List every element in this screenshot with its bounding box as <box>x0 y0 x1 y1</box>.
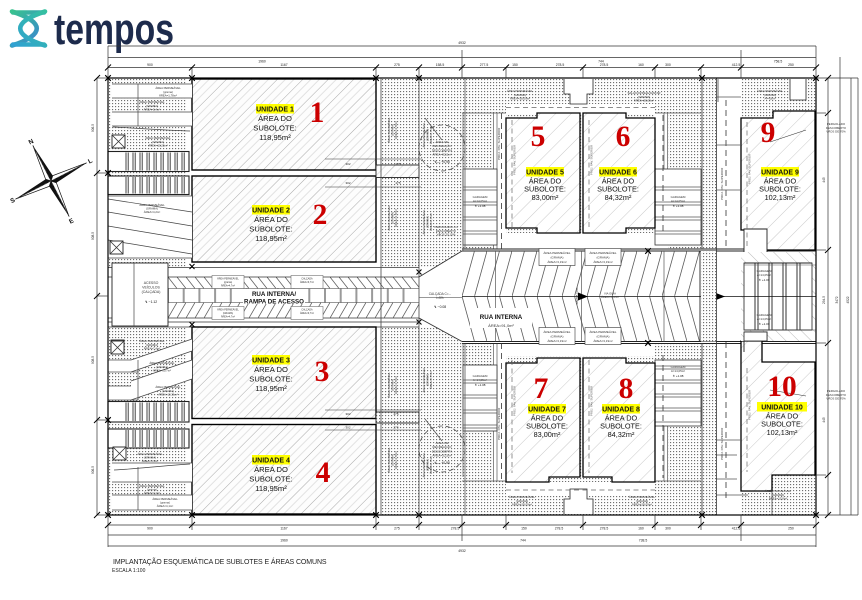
svg-text:PROJ. PAV. SUPERIOR: PROJ. PAV. SUPERIOR <box>590 145 594 175</box>
svg-text:SUBOLOTE:: SUBOLOTE: <box>249 375 292 384</box>
svg-text:744: 744 <box>520 539 526 543</box>
svg-text:ÁREA=4,78m²: ÁREA=4,78m² <box>394 121 398 139</box>
svg-text:(GRAMA): (GRAMA) <box>597 335 610 339</box>
svg-text:ÁREA PERMEÁVEL: ÁREA PERMEÁVEL <box>543 251 571 255</box>
svg-text:PROJ. PAV. SUPERIOR: PROJ. PAV. SUPERIOR <box>497 407 501 440</box>
svg-text:VÃOS DE 70%: VÃOS DE 70% <box>826 396 846 401</box>
svg-text:4522: 4522 <box>846 296 850 303</box>
svg-text:RAMPA i=8%: RAMPA i=8% <box>575 287 579 304</box>
svg-text:4932: 4932 <box>458 41 466 45</box>
svg-text:UNIDADE 1: UNIDADE 1 <box>256 106 294 113</box>
svg-text:250: 250 <box>788 63 794 67</box>
svg-text:302: 302 <box>345 412 350 416</box>
svg-text:150: 150 <box>521 527 527 531</box>
svg-text:1: 1 <box>310 97 325 129</box>
svg-text:ACESSO: ACESSO <box>144 281 159 285</box>
svg-text:150: 150 <box>512 63 518 67</box>
svg-text:ÁREA DO: ÁREA DO <box>254 215 288 224</box>
svg-text:ÁREA=4,78m²: ÁREA=4,78m² <box>394 376 398 394</box>
svg-text:4932: 4932 <box>458 549 466 553</box>
svg-text:ÁREA=15,8m²: ÁREA=15,8m² <box>769 497 788 501</box>
svg-text:(GRAMA): (GRAMA) <box>551 256 564 260</box>
svg-text:275: 275 <box>395 162 400 166</box>
svg-text:ÁREA=7,4m²: ÁREA=7,4m² <box>144 347 160 351</box>
svg-text:1960: 1960 <box>258 60 266 64</box>
svg-text:9: 9 <box>761 117 776 149</box>
svg-text:ÁREA=10,7m²: ÁREA=10,7m² <box>153 369 171 373</box>
svg-text:ÁREA DO: ÁREA DO <box>258 114 292 123</box>
svg-text:84,32m²: 84,32m² <box>605 193 632 202</box>
svg-text:900: 900 <box>147 527 153 531</box>
svg-text:84,32m²: 84,32m² <box>608 430 635 439</box>
svg-text:A=14,05m²: A=14,05m² <box>473 199 487 203</box>
svg-text:302: 302 <box>345 162 350 166</box>
svg-text:SUBOLOTE:: SUBOLOTE: <box>249 225 292 234</box>
svg-text:445: 445 <box>822 417 826 423</box>
svg-text:↯ +1.03: ↯ +1.03 <box>759 322 770 326</box>
svg-text:↯ +1.08: ↯ +1.08 <box>673 204 684 208</box>
svg-text:160: 160 <box>638 527 644 531</box>
svg-text:275: 275 <box>394 527 400 531</box>
svg-text:908.5: 908.5 <box>91 232 95 240</box>
svg-text:ÁREA=4,7m²: ÁREA=4,7m² <box>221 284 235 287</box>
svg-text:906.5: 906.5 <box>91 124 95 132</box>
svg-text:278.5: 278.5 <box>556 63 565 67</box>
svg-text:278.5: 278.5 <box>600 527 609 531</box>
svg-text:250: 250 <box>788 527 794 531</box>
svg-text:ÁREA PERMEÁVEL: ÁREA PERMEÁVEL <box>589 330 617 334</box>
svg-text:SUBOLOTE:: SUBOLOTE: <box>253 124 296 133</box>
svg-text:302: 302 <box>345 426 350 430</box>
svg-text:ÁREA=10,22m²: ÁREA=10,22m² <box>148 144 168 148</box>
svg-text:ÁREA=4,1m²: ÁREA=4,1m² <box>157 504 173 508</box>
svg-text:118,95m²: 118,95m² <box>259 133 291 142</box>
svg-text:PROJ. PAV. SUPERIOR: PROJ. PAV. SUPERIOR <box>720 167 724 200</box>
svg-text:↯ +1.08: ↯ +1.08 <box>673 374 684 378</box>
svg-text:ÁREA PERMEÁVEL: ÁREA PERMEÁVEL <box>543 330 571 334</box>
svg-text:275: 275 <box>393 412 398 416</box>
svg-text:A=14,05m²: A=14,05m² <box>671 199 685 203</box>
svg-text:RUA INTERNA/: RUA INTERNA/ <box>252 291 296 298</box>
svg-text:ÁREA=4,1m²: ÁREA=4,1m² <box>144 491 160 495</box>
svg-text:ÁREA=3,19m²: ÁREA=3,19m² <box>547 260 566 264</box>
svg-text:ÁREA DO: ÁREA DO <box>254 365 288 374</box>
svg-text:ÁREA=28,09m²: ÁREA=28,09m² <box>634 99 654 103</box>
svg-text:SUBOLOTE:: SUBOLOTE: <box>249 475 292 484</box>
svg-text:1960: 1960 <box>280 539 288 543</box>
svg-text:↯— +0.90: ↯— +0.90 <box>434 461 450 465</box>
svg-text:ÁREA=4,78m²: ÁREA=4,78m² <box>394 209 398 227</box>
svg-text:445: 445 <box>822 177 826 183</box>
svg-text:UNIDADE 3: UNIDADE 3 <box>252 357 290 364</box>
svg-text:8: 8 <box>619 373 634 405</box>
svg-text:275: 275 <box>393 426 398 430</box>
svg-text:ÁREA=28,09m²: ÁREA=28,09m² <box>632 503 652 507</box>
svg-text:83,00m²: 83,00m² <box>532 193 559 202</box>
svg-text:PROJ. PAV. SUPERIOR: PROJ. PAV. SUPERIOR <box>590 386 594 416</box>
svg-text:275: 275 <box>394 63 400 67</box>
svg-text:3472: 3472 <box>835 296 839 303</box>
svg-text:118,95m²: 118,95m² <box>255 484 287 493</box>
svg-text:PROJ. PAV. SUPERIOR: PROJ. PAV. SUPERIOR <box>748 390 752 420</box>
svg-text:278.5: 278.5 <box>555 527 564 531</box>
svg-text:ÁREA=4,7m²: ÁREA=4,7m² <box>221 315 235 318</box>
svg-text:ÁREA=5,4m²: ÁREA=5,4m² <box>144 108 160 112</box>
svg-text:118,95m²: 118,95m² <box>255 384 287 393</box>
svg-text:744: 744 <box>598 60 604 64</box>
svg-text:1167: 1167 <box>280 527 287 531</box>
svg-text:A=4,8m²: A=4,8m² <box>764 97 775 101</box>
svg-text:102,13m²: 102,13m² <box>765 193 796 202</box>
svg-text:7: 7 <box>534 373 549 405</box>
svg-text:118,95m²: 118,95m² <box>255 234 287 243</box>
svg-text:RUA INTERNA: RUA INTERNA <box>480 314 523 321</box>
svg-text:6: 6 <box>616 121 631 153</box>
svg-text:↯ −0.08: ↯ −0.08 <box>434 305 446 309</box>
svg-text:900: 900 <box>147 63 153 67</box>
svg-text:102,13m²: 102,13m² <box>767 428 798 437</box>
svg-text:VÃOS 20.10%: VÃOS 20.10% <box>437 232 456 237</box>
svg-text:ÁREA=3,19m²: ÁREA=3,19m² <box>547 339 566 343</box>
svg-text:PROJ. PAV. SUPERIOR: PROJ. PAV. SUPERIOR <box>748 154 752 184</box>
svg-text:A=14,05m²: A=14,05m² <box>757 317 771 321</box>
svg-text:ÁREA=9,7m²: ÁREA=9,7m² <box>300 312 314 315</box>
svg-text:PROJ. PAV. SUPERIOR: PROJ. PAV. SUPERIOR <box>513 145 517 175</box>
svg-text:ÁREA=8,75m²: ÁREA=8,75m² <box>429 213 433 231</box>
svg-text:277.5: 277.5 <box>480 63 489 67</box>
svg-text:2: 2 <box>313 199 328 231</box>
svg-text:908.5: 908.5 <box>91 356 95 364</box>
svg-text:IMPLANTAÇÃO ESQUEMÁTICA DE SUB: IMPLANTAÇÃO ESQUEMÁTICA DE SUBLOTES E ÁR… <box>113 557 327 566</box>
svg-text:158.5: 158.5 <box>436 63 445 67</box>
svg-text:758.5: 758.5 <box>774 60 783 64</box>
svg-text:160: 160 <box>638 63 644 67</box>
svg-text:10: 10 <box>767 371 797 403</box>
svg-text:300: 300 <box>665 527 671 531</box>
svg-text:↯— +0.90: ↯— +0.90 <box>434 160 450 164</box>
svg-text:ÁREA=32,5m²: ÁREA=32,5m² <box>432 454 451 458</box>
svg-text:294.5: 294.5 <box>822 296 826 304</box>
svg-text:↯ +1.03: ↯ +1.03 <box>759 278 770 282</box>
svg-text:↯ −1.12: ↯ −1.12 <box>145 300 157 304</box>
svg-text:83,00m²: 83,00m² <box>534 430 561 439</box>
svg-text:ÁREA=8,75m²: ÁREA=8,75m² <box>429 371 433 389</box>
svg-text:(GRAMA): (GRAMA) <box>551 335 564 339</box>
svg-text:906.5: 906.5 <box>91 466 95 474</box>
svg-text:ÁREA=3,19m²: ÁREA=3,19m² <box>593 260 612 264</box>
svg-text:ÁREA=32,5m²: ÁREA=32,5m² <box>432 153 451 157</box>
svg-text:UNIDADE 4: UNIDADE 4 <box>252 457 290 464</box>
svg-text:PROJ. PAV. SUPERIOR: PROJ. PAV. SUPERIOR <box>513 386 517 416</box>
svg-text:tempos: tempos <box>54 5 174 54</box>
svg-text:ÁREA=3,19m²: ÁREA=3,19m² <box>593 339 612 343</box>
svg-text:300: 300 <box>665 63 671 67</box>
svg-text:PROJ. PAV. SUPERIOR: PROJ. PAV. SUPERIOR <box>720 427 724 460</box>
svg-text:A=14,05m²: A=14,05m² <box>757 273 771 277</box>
svg-text:VÃOS DE 70%: VÃOS DE 70% <box>826 129 846 134</box>
svg-text:278.5: 278.5 <box>600 63 609 67</box>
svg-text:5: 5 <box>531 121 546 153</box>
svg-text:ÁREA=4,78m²: ÁREA=4,78m² <box>394 451 398 469</box>
svg-text:ÁREA=28,09m²: ÁREA=28,09m² <box>510 97 530 101</box>
svg-text:ÁREA=8,75m²: ÁREA=8,75m² <box>429 456 433 474</box>
svg-text:PROJ. PAV. SUPERIOR: PROJ. PAV. SUPERIOR <box>497 127 501 160</box>
svg-text:VEÍCULOS: VEÍCULOS <box>142 285 160 289</box>
svg-text:3: 3 <box>315 356 330 388</box>
svg-text:278.5: 278.5 <box>451 527 460 531</box>
svg-text:ÁREA=38,2m²: ÁREA=38,2m² <box>601 295 619 299</box>
svg-text:↯ +1.08: ↯ +1.08 <box>475 383 486 387</box>
svg-text:i=5%: i=5% <box>436 296 443 300</box>
svg-text:412.5: 412.5 <box>732 527 741 531</box>
svg-text:1167: 1167 <box>280 63 287 67</box>
svg-text:738.5: 738.5 <box>639 539 648 543</box>
svg-text:A=14,05m²: A=14,05m² <box>671 369 685 373</box>
svg-text:ÁREA=91,0m²: ÁREA=91,0m² <box>488 323 514 328</box>
svg-text:ÁREA=4,2m²: ÁREA=4,2m² <box>144 210 160 214</box>
svg-text:ÁREA=8,75m²: ÁREA=8,75m² <box>429 126 433 144</box>
svg-text:ESCALA 1:100: ESCALA 1:100 <box>112 568 146 574</box>
svg-text:↯ +1.08: ↯ +1.08 <box>475 204 486 208</box>
svg-text:ÁREA=10,36m²: ÁREA=10,36m² <box>158 393 178 397</box>
svg-text:ÁREA=4,9m²: ÁREA=4,9m² <box>142 459 158 463</box>
svg-text:412.5: 412.5 <box>732 63 741 67</box>
svg-text:A=14,05m²: A=14,05m² <box>473 378 487 382</box>
svg-text:ÁREA=1,78m²: ÁREA=1,78m² <box>159 94 177 98</box>
svg-text:(CALÇADA): (CALÇADA) <box>142 290 161 294</box>
svg-text:ÁREA=9,7m²: ÁREA=9,7m² <box>300 281 314 284</box>
svg-text:275: 275 <box>395 181 400 185</box>
svg-text:(GRAMA): (GRAMA) <box>597 256 610 260</box>
svg-text:ÁREA PERMEÁVEL: ÁREA PERMEÁVEL <box>589 251 617 255</box>
svg-text:302: 302 <box>345 181 350 185</box>
svg-text:UNIDADE 2: UNIDADE 2 <box>252 207 290 214</box>
svg-text:ÁREA=28,09m²: ÁREA=28,09m² <box>512 503 532 507</box>
svg-text:RAMPA DE ACESSO: RAMPA DE ACESSO <box>244 299 304 306</box>
svg-text:ÁREA DO: ÁREA DO <box>254 465 288 474</box>
svg-text:4: 4 <box>316 457 331 489</box>
